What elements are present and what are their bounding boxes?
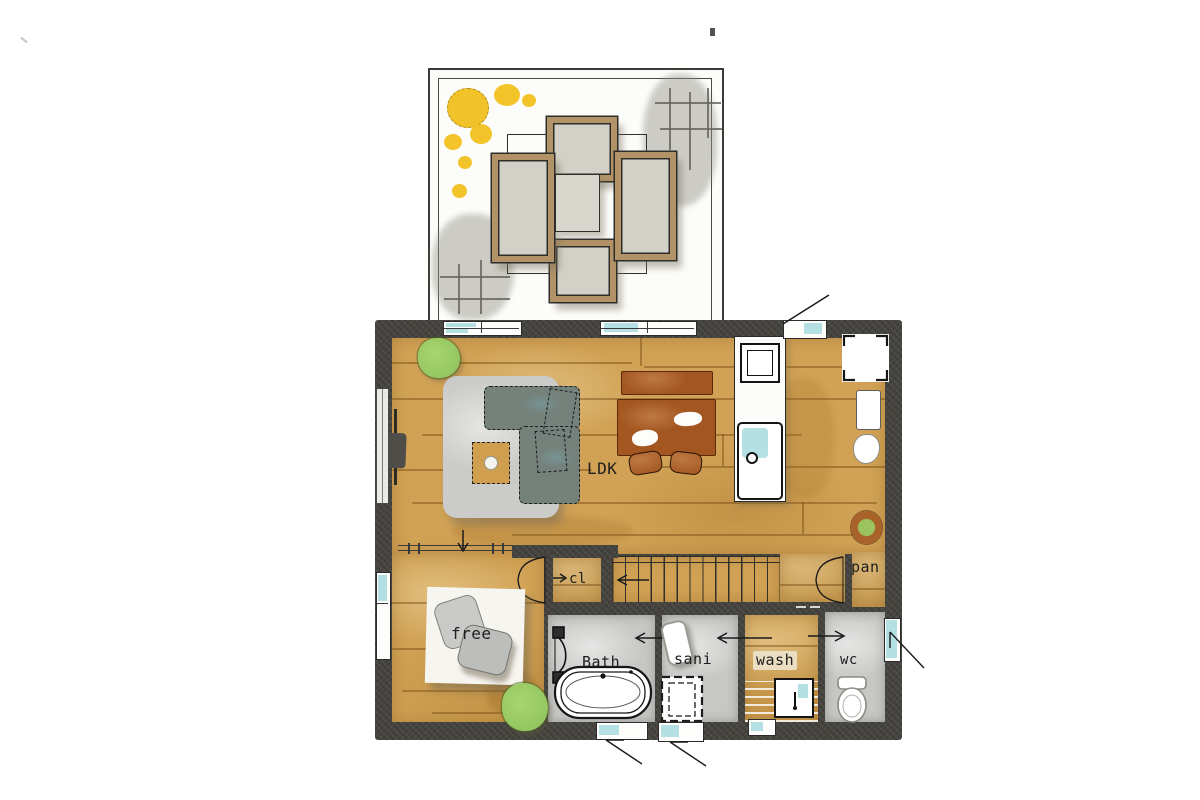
- room-label-bath: Bath: [582, 655, 620, 670]
- sink-drain: [746, 452, 758, 464]
- window-tick-line: [604, 738, 646, 766]
- room-label-wash: wash: [753, 651, 797, 670]
- toilet-icon: [833, 676, 871, 724]
- window-ldk-top-left: [443, 321, 522, 336]
- deck-bench-right: [615, 152, 676, 260]
- deck-tile-hatch: [440, 258, 516, 318]
- window-tick-line: [888, 630, 928, 672]
- potted-plant-ldk: [418, 338, 460, 378]
- deck-chair-bottom: [550, 240, 616, 302]
- potted-plant-free: [502, 683, 548, 731]
- dining-chair: [669, 450, 703, 476]
- floor-plan-scan: LDK cl pan: [0, 0, 1200, 800]
- dining-table: [617, 399, 716, 456]
- entrance-door-swing-line: [780, 292, 832, 326]
- sofa-cushion: [535, 429, 568, 473]
- window-free-left-wall: [376, 572, 391, 660]
- scan-artifact: [20, 37, 27, 44]
- wall-dash-mark: [810, 606, 820, 608]
- room-label-ldk: LDK: [587, 461, 617, 477]
- door-direction-arrow-down: [456, 528, 470, 554]
- coffee-table-cup: [484, 456, 498, 470]
- planter-pot: [851, 511, 882, 544]
- deck-center-table: [555, 174, 600, 232]
- wash-vanity: [774, 678, 814, 718]
- window-wash-bottom: [748, 719, 776, 736]
- room-label-toilet: wc: [840, 653, 858, 667]
- room-label-sanitary: sani: [674, 652, 712, 667]
- door-direction-arrow-left: [714, 632, 774, 645]
- window-tick-line: [668, 740, 710, 768]
- window-sanitary-bottom: [658, 722, 704, 742]
- pantry-folding-door-icon: [813, 556, 845, 604]
- wall-dash-mark: [796, 606, 806, 608]
- deck-bench-left: [492, 154, 554, 262]
- stove-inner: [747, 350, 773, 376]
- bathtub-icon: [553, 665, 653, 720]
- window-ldk-top-right: [600, 321, 697, 336]
- room-label-pantry: pan: [851, 560, 880, 575]
- window-ldk-left-wall: [376, 388, 389, 504]
- room-label-free: free: [451, 626, 492, 642]
- room-label-closet: cl: [569, 572, 587, 586]
- washing-machine-icon: [660, 675, 704, 723]
- stairs-direction-arrow: [613, 573, 651, 587]
- fridge: [842, 334, 889, 382]
- deck-terrace: [428, 68, 724, 330]
- scan-artifact: [710, 28, 715, 36]
- deck-chair-top: [547, 117, 617, 181]
- dining-bench: [621, 371, 713, 395]
- closet-arrow-icon: [552, 573, 568, 583]
- door-direction-arrow-right: [806, 630, 848, 643]
- wall-cabinet: [856, 390, 881, 430]
